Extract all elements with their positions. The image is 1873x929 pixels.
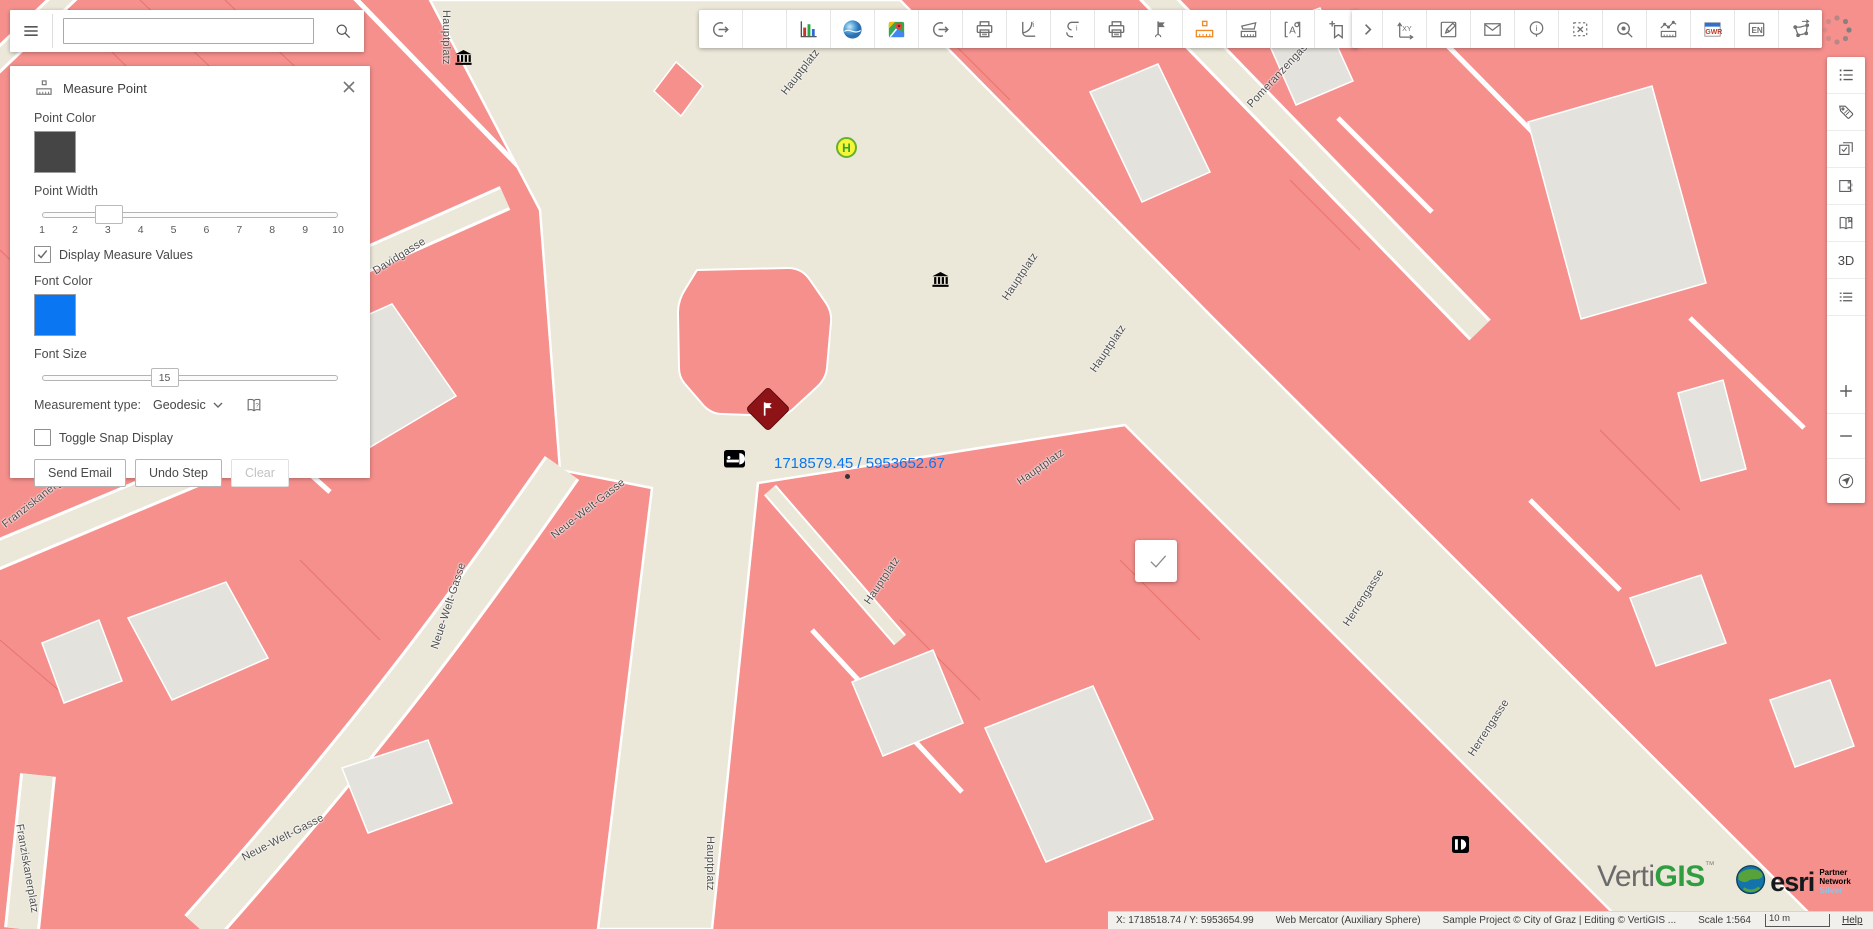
slider-tick-label: 3 — [105, 224, 111, 236]
search-input[interactable] — [63, 18, 314, 44]
svg-text:?: ? — [255, 403, 259, 410]
zoom-out-icon — [1836, 426, 1856, 446]
help-link[interactable]: Help — [1842, 915, 1863, 926]
display-measure-values-row: Display Measure Values — [34, 246, 346, 263]
transform-button[interactable] — [1778, 10, 1822, 48]
partner-network-label: Partner Network Silver — [1819, 869, 1873, 895]
svg-text:GWR: GWR — [1705, 29, 1722, 36]
slider-tick-label: 7 — [236, 224, 242, 236]
flag-icon — [1149, 18, 1172, 41]
measure-point-button[interactable] — [1182, 10, 1226, 48]
font-color-label: Font Color — [34, 274, 346, 288]
export-icon — [709, 18, 732, 41]
sidebar-spacer — [1827, 315, 1865, 369]
svg-text:XY: XY — [1402, 24, 1412, 32]
search-button[interactable] — [322, 10, 364, 52]
scale-bar-label: 10 m — [1769, 913, 1790, 924]
report-button[interactable]: i — [1006, 10, 1050, 48]
clear-button[interactable]: Clear — [231, 459, 289, 487]
esri-logo: esri Partner Network Silver — [1735, 864, 1873, 900]
report-alt-button[interactable]: i — [1050, 10, 1094, 48]
panel-title: Measure Point — [63, 81, 147, 96]
tag-icon — [1836, 102, 1856, 122]
font-size-handle[interactable]: 15 — [151, 368, 179, 387]
menu-icon — [21, 21, 41, 41]
send-email-button[interactable]: Send Email — [34, 459, 126, 487]
point-color-swatch[interactable] — [34, 131, 76, 173]
svg-text:i: i — [1032, 20, 1034, 29]
measure-point-panel: Measure Point Point Color Point Width 12… — [10, 66, 370, 478]
measure-point-icon — [34, 78, 54, 98]
bookmark-add-icon — [1325, 18, 1348, 41]
gwr-button[interactable]: GWR — [1690, 10, 1734, 48]
museum-icon — [455, 50, 472, 65]
close-icon[interactable] — [340, 78, 358, 96]
maps-button[interactable] — [874, 10, 918, 48]
panel-header: Measure Point — [34, 76, 346, 100]
clear-selection-button[interactable] — [1558, 10, 1602, 48]
slider-ticks: 12345678910 — [42, 224, 338, 238]
measure-point-dot — [845, 474, 850, 479]
chart-button[interactable] — [786, 10, 830, 48]
app-window: HauptplatzHauptplatzPomeranzengasseDavid… — [0, 0, 1873, 929]
profile-icon — [1657, 18, 1680, 41]
point-color-label: Point Color — [34, 111, 346, 125]
toggle-snap-label: Toggle Snap Display — [59, 431, 173, 445]
sidebar-swatch-button[interactable] — [1827, 167, 1865, 204]
goto-xy-icon: XY — [1393, 18, 1416, 41]
svg-text:A: A — [1289, 25, 1296, 36]
search-icon — [333, 21, 353, 41]
blank-icon — [753, 18, 776, 41]
toolbar-main: iiA — [699, 10, 1358, 48]
font-size-value: 15 — [159, 372, 171, 384]
gwr-icon: GWR — [1701, 18, 1724, 41]
confirm-button[interactable] — [1135, 540, 1177, 582]
flag-button[interactable] — [1138, 10, 1182, 48]
projection-label: Web Mercator (Auxiliary Sphere) — [1276, 915, 1421, 926]
search-bar — [10, 10, 364, 52]
font-size-label: Font Size — [34, 347, 346, 361]
report-icon: i — [1017, 18, 1040, 41]
measure-value-label: 1718579.45 / 5953652.67 — [774, 455, 945, 472]
email-icon — [1481, 18, 1504, 41]
loading-spinner — [1817, 10, 1857, 50]
zoom-out-button[interactable] — [1827, 413, 1865, 458]
divider — [52, 14, 53, 48]
svg-text:i: i — [1536, 22, 1538, 32]
measurement-type-row: Measurement type: Geodesic ? — [34, 395, 346, 415]
earth-button[interactable] — [830, 10, 874, 48]
expand-button[interactable] — [1352, 10, 1382, 48]
bus-stop-icon: H — [836, 137, 857, 158]
edit-form-button[interactable] — [1426, 10, 1470, 48]
measurement-type-label: Measurement type: — [34, 398, 141, 412]
list-icon — [1836, 287, 1856, 307]
sidebar-book-button[interactable] — [1827, 204, 1865, 241]
email-button[interactable] — [1470, 10, 1514, 48]
export-alt-button[interactable] — [918, 10, 962, 48]
undo-step-button[interactable]: Undo Step — [135, 459, 222, 487]
slider-tick-label: 8 — [269, 224, 275, 236]
vertigis-suffix: GIS — [1655, 860, 1705, 893]
locate-icon — [1836, 471, 1856, 491]
svg-text:i: i — [1076, 23, 1078, 32]
slider-track[interactable] — [42, 212, 338, 218]
vertigis-prefix: Verti — [1597, 860, 1655, 893]
label-button[interactable]: A — [1270, 10, 1314, 48]
flag-glyph — [758, 399, 778, 419]
profile-button[interactable] — [1646, 10, 1690, 48]
measurement-type-value: Geodesic — [153, 398, 206, 412]
sidebar-3d-button[interactable]: 3D — [1827, 241, 1865, 278]
point-width-slider: 12345678910 — [42, 212, 338, 238]
slider-tick-label: 4 — [138, 224, 144, 236]
sidebar-layer-list-button[interactable] — [1827, 57, 1865, 93]
hotel-icon — [724, 450, 745, 468]
report-alt-icon: i — [1061, 18, 1084, 41]
label-icon: A — [1281, 18, 1304, 41]
language-button[interactable]: EN — [1734, 10, 1778, 48]
export-button[interactable] — [699, 10, 742, 48]
earth-icon — [841, 18, 864, 41]
menu-button[interactable] — [10, 10, 52, 52]
scale-label: Scale 1:564 — [1698, 915, 1751, 926]
locate-button[interactable] — [1827, 458, 1865, 503]
point-width-handle[interactable] — [95, 205, 123, 224]
zoom-in-button[interactable] — [1827, 369, 1865, 413]
museum-icon — [932, 272, 949, 287]
panel-buttons: Send Email Undo Step Clear — [34, 459, 346, 487]
book-icon — [1836, 213, 1856, 233]
info-icon: i — [1525, 18, 1548, 41]
display-measure-values-label: Display Measure Values — [59, 248, 193, 262]
street-label: Hauptplatz — [440, 10, 452, 65]
print-button[interactable] — [962, 10, 1006, 48]
sidebar-tag-button[interactable] — [1827, 93, 1865, 130]
export-alt-icon — [929, 18, 952, 41]
toolbar-more: XYiGWREN — [1352, 10, 1822, 48]
slider-tick-label: 6 — [204, 224, 210, 236]
language-icon: EN — [1745, 18, 1768, 41]
measure-area-button[interactable] — [1226, 10, 1270, 48]
expand-icon — [1356, 18, 1379, 41]
map-sidebar: 3D — [1827, 57, 1865, 503]
slider-tick-label: 1 — [39, 224, 45, 236]
toggle-snap-checkbox[interactable] — [34, 429, 51, 446]
esri-label: esri — [1770, 867, 1814, 898]
slider-track[interactable]: 15 — [42, 375, 338, 381]
scale-bar: 10 m — [1765, 914, 1830, 927]
vertigis-logo: VertiGIS™ — [1597, 860, 1714, 894]
print-icon — [973, 18, 996, 41]
status-bar: X: 1718518.74 / Y: 5953654.99 Web Mercat… — [1108, 911, 1873, 929]
zoom-in-icon — [1836, 381, 1856, 401]
edit-form-icon — [1437, 18, 1460, 41]
swatch-icon — [1836, 176, 1856, 196]
street-label: Hauptplatz — [704, 836, 716, 891]
svg-text:EN: EN — [1752, 26, 1763, 35]
sidebar-select-features-button[interactable] — [1827, 130, 1865, 167]
maps-icon — [885, 18, 908, 41]
pointer-coordinates: X: 1718518.74 / Y: 5953654.99 — [1116, 915, 1254, 926]
slider-tick-label: 9 — [302, 224, 308, 236]
esri-globe-icon — [1735, 864, 1766, 900]
display-measure-values-checkbox[interactable] — [34, 246, 51, 263]
info-button[interactable]: i — [1514, 10, 1558, 48]
central-building — [678, 268, 831, 416]
slider-tick-label: 2 — [72, 224, 78, 236]
bus-stop-letter: H — [842, 141, 851, 155]
clear-selection-icon — [1569, 18, 1592, 41]
print-alt-button[interactable] — [1094, 10, 1138, 48]
book-help-icon[interactable]: ? — [243, 395, 265, 415]
attribution: Sample Project © City of Graz | Editing … — [1443, 915, 1677, 926]
print-alt-icon — [1105, 18, 1128, 41]
measure-point-icon — [1193, 18, 1216, 41]
chart-icon — [797, 18, 820, 41]
poi-icon — [1452, 836, 1469, 853]
goto-xy-button[interactable]: XY — [1382, 10, 1426, 48]
toggle-snap-row: Toggle Snap Display — [34, 429, 346, 446]
measurement-type-dropdown[interactable]: Geodesic — [153, 398, 225, 412]
font-color-swatch[interactable] — [34, 294, 76, 336]
layer-list-icon — [1836, 65, 1856, 85]
toolbar-blank-slot — [742, 10, 786, 48]
trademark: ™ — [1705, 860, 1715, 871]
zoomto-icon — [1613, 18, 1636, 41]
transform-icon — [1789, 18, 1812, 41]
sidebar-list-button[interactable] — [1827, 278, 1865, 315]
slider-tick-label: 5 — [171, 224, 177, 236]
measure-area-icon — [1237, 18, 1260, 41]
point-width-label: Point Width — [34, 184, 346, 198]
zoomto-button[interactable] — [1602, 10, 1646, 48]
chevron-down-icon — [211, 398, 225, 412]
font-size-slider: 15 — [42, 375, 338, 381]
select-features-icon — [1836, 139, 1856, 159]
slider-tick-label: 10 — [332, 224, 344, 236]
